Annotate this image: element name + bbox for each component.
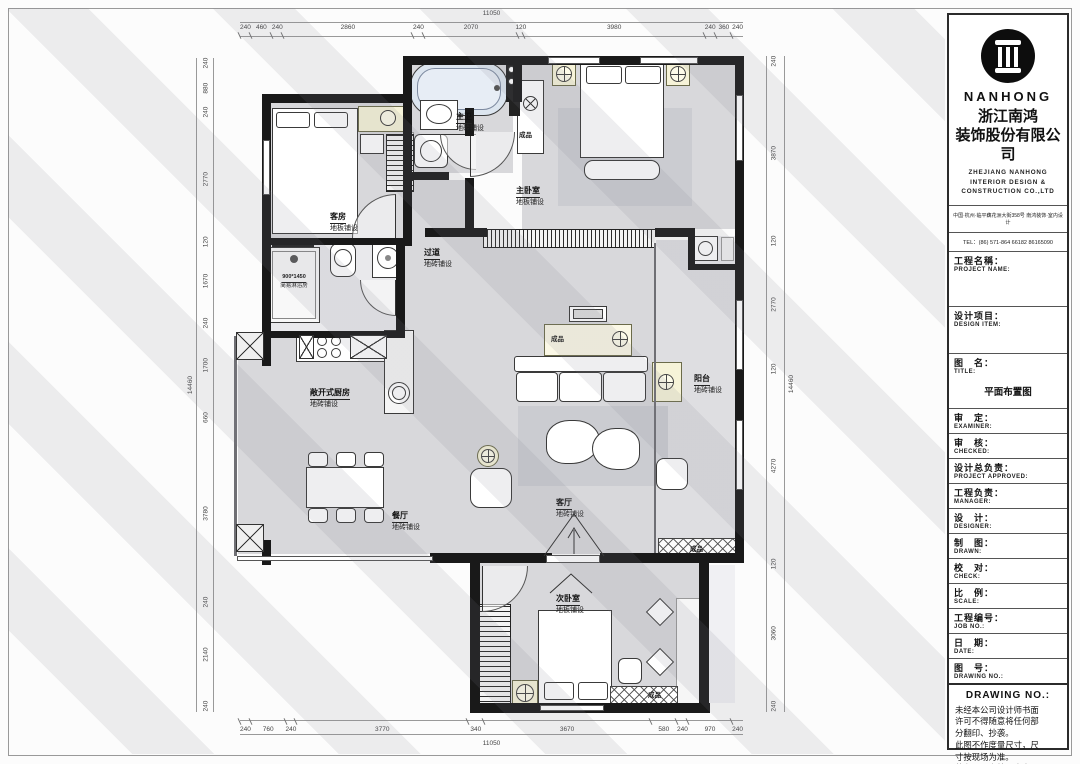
logo-column-bar: [1014, 47, 1018, 67]
dimension-total-top: 11050: [240, 10, 743, 23]
row-label-en: DRAWING NO.:: [954, 674, 1062, 680]
logo-column-cap: [995, 40, 1021, 45]
coffee-table: [592, 428, 640, 470]
dining-chair: [336, 508, 356, 523]
row-label-en: SCALE:: [954, 599, 1062, 605]
dimension-row-top: 240460240286024020701203980240360240: [240, 24, 743, 37]
dimension-value: 3870: [767, 67, 781, 238]
room-label-master: 主卧室 地板铺设: [516, 186, 544, 207]
company-name-en: ZHEJIANG NANHONG INTERIOR DESIGN & CONST…: [949, 168, 1067, 196]
column: [236, 524, 264, 552]
wall: [600, 553, 744, 563]
company-name-en-line: INTERIOR DESIGN &: [949, 178, 1067, 187]
dimension-value: 2770: [767, 243, 781, 366]
row-label-cn: 图 名：: [954, 356, 1062, 369]
nanhong-logo-icon: [981, 29, 1035, 83]
guest-drawer-unit: [360, 134, 384, 154]
lamp-cross-icon: [481, 449, 495, 463]
wall: [403, 56, 521, 65]
dimension-value: 240: [199, 107, 213, 118]
dimension-value: 240: [199, 597, 213, 608]
row-label-en: DRAWN:: [954, 549, 1062, 555]
drawing-notice-lines: 未经本公司设计师书面许可不得随意将任何部分翻印、抄袭。此图不作度量尺寸，尺寸按现…: [955, 705, 1061, 764]
dimension-value: 760: [251, 721, 286, 733]
fan-icon: [516, 684, 534, 702]
row-label-en: EXAMINER:: [954, 424, 1062, 430]
row-label-en: DATE:: [954, 649, 1062, 655]
notice-line: 此图不作度量尺寸，尺: [955, 740, 1061, 752]
sofa-back: [514, 356, 648, 372]
second-pillow: [544, 682, 574, 700]
room-label-balcony: 阳台 地砖铺设: [694, 374, 722, 395]
row-label-cn: 图 号：: [954, 661, 1062, 674]
row-label-en: CHECK:: [954, 574, 1062, 580]
dimension-col-left: 2408802402770120167024017006603780240214…: [199, 58, 214, 712]
dining-chair: [364, 508, 384, 523]
window: [540, 705, 604, 711]
row-label-cn: 工程负责：: [954, 486, 1062, 499]
window: [237, 556, 433, 561]
titleblock-row: 图 号：DRAWING NO.:: [949, 658, 1067, 683]
company-header: NANHONG 浙江南鸿 装饰股份有限公司 ZHEJIANG NANHONG I…: [949, 15, 1067, 197]
master-pillow: [586, 66, 622, 84]
row-label-en: DESIGN ITEM:: [954, 322, 1062, 328]
titleblock-row: 设计总负责：PROJECT APPROVED:: [949, 458, 1067, 483]
stool: [656, 458, 688, 490]
wall: [262, 94, 271, 366]
finished-label: 成品: [551, 333, 564, 343]
sofa-seat: [559, 372, 602, 402]
wall: [403, 172, 449, 180]
dimension-value: 660: [199, 403, 213, 432]
notice-line: 分翻印、抄袭。: [955, 728, 1061, 740]
sofa-seat: [603, 372, 646, 402]
wall: [403, 94, 412, 246]
dimension-value: 340: [468, 721, 483, 733]
dimension-value: 240: [732, 721, 743, 733]
dimension-value: 3060: [767, 566, 781, 702]
titleblock-row: 审 核：CHECKED:: [949, 433, 1067, 458]
room-label-dining: 餐厅 地砖铺设: [392, 511, 420, 532]
dimension-value: 2770: [199, 118, 213, 239]
row-label-cn: 设 计：: [954, 511, 1062, 524]
wall: [688, 264, 742, 270]
wall: [425, 228, 487, 237]
wall: [262, 238, 405, 245]
master-closet: [483, 229, 655, 248]
company-tel: TEL：(86) 571-864 66182 86165090: [949, 232, 1067, 251]
sofa-seat: [516, 372, 558, 402]
room-label-hallway: 过道 地砖铺设: [424, 248, 452, 269]
row-label-en: DESIGNER:: [954, 524, 1062, 530]
dimension-value: 14460: [187, 376, 194, 394]
row-label-en: CHECKED:: [954, 449, 1062, 455]
row-label-en: TITLE:: [954, 369, 1062, 375]
titleblock-row: 比 例：SCALE:: [949, 583, 1067, 608]
room-label-master-bath: 主卫 地砖铺设: [456, 112, 484, 133]
toilet-bowl: [334, 249, 352, 267]
dimension-value: 970: [688, 721, 732, 733]
room-label-living: 客厅 地砖铺设: [556, 498, 584, 519]
row-value: 平面布置图: [949, 384, 1067, 398]
window: [263, 140, 270, 195]
column: [236, 332, 264, 360]
wall: [699, 553, 709, 713]
row-label-cn: 比 例：: [954, 586, 1062, 599]
row-label-cn: 校 对：: [954, 561, 1062, 574]
island-end: [350, 335, 387, 359]
row-label-en: PROJECT APPROVED:: [954, 474, 1062, 480]
window: [736, 300, 743, 370]
row-label-cn: 工程名稱：: [954, 254, 1062, 267]
company-name-en-line: CONSTRUCTION CO.,LTD: [949, 187, 1067, 196]
tv-screen: [573, 309, 603, 319]
ceiling-light-icon: [658, 374, 674, 390]
row-label-cn: 工程编号：: [954, 611, 1062, 624]
dimension-total-right: 14460: [784, 56, 797, 712]
row-label-en: PROJECT NAME:: [954, 267, 1062, 273]
wall: [470, 562, 480, 712]
stove-burner: [317, 348, 327, 358]
door-swing-arrow-icon: [548, 572, 594, 594]
dimension-value: 3980: [524, 24, 705, 36]
dimension-value: 2140: [199, 608, 213, 702]
room-label-kitchen: 敞开式厨房 地砖铺设: [310, 388, 350, 409]
wall: [735, 238, 744, 563]
titleblock-row: 审 定：EXAMINER:: [949, 408, 1067, 433]
ceiling-light-icon: [612, 331, 628, 347]
row-label-cn: 设计项目：: [954, 309, 1062, 322]
ceiling-light-icon: [556, 66, 572, 82]
company-name-cn: 浙江南鸿 装饰股份有限公司: [949, 108, 1067, 164]
row-label-cn: 日 期：: [954, 636, 1062, 649]
floor-bay-window: [709, 565, 735, 703]
room-label-second: 次卧室 地板铺设: [556, 594, 584, 615]
bay-window-sill: [676, 598, 700, 706]
dimension-value: 11050: [483, 10, 501, 17]
dimension-total-left: 14460: [184, 58, 197, 712]
company-name-cn-line: 浙江南鸿: [949, 108, 1067, 127]
shower-head-icon: [290, 255, 298, 263]
titleblock-row: 工程编号：JOB NO.:: [949, 608, 1067, 633]
island-end: [299, 335, 314, 359]
window: [736, 420, 743, 490]
titleblock-row: 日 期：DATE:: [949, 633, 1067, 658]
titleblock-row: 设计项目：DESIGN ITEM:: [949, 306, 1067, 353]
dimension-col-right: 2403870120277012042701203060240: [766, 56, 781, 712]
bathtub-faucet: [494, 85, 500, 91]
kitchen-sink-inner: [392, 386, 406, 400]
finished-label: 成品: [519, 129, 532, 139]
titleblock-rows: 工程名稱：PROJECT NAME:设计项目：DESIGN ITEM:图 名：T…: [949, 251, 1067, 683]
dimension-value: 240: [199, 58, 213, 69]
brand-name: NANHONG: [949, 89, 1067, 104]
window: [640, 57, 698, 64]
desk-chair: [618, 658, 642, 684]
room-label-guest: 客房 地板铺设: [330, 212, 358, 233]
titleblock-row: 工程名稱：PROJECT NAME:: [949, 251, 1067, 306]
dining-table: [306, 467, 384, 508]
guest-pillow: [276, 112, 310, 128]
logo-column-cap: [995, 68, 1021, 73]
dimension-value: 14460: [788, 375, 795, 393]
room-label-shower: 900*1450 简易淋浴房: [270, 274, 318, 290]
drawing-notice: DRAWING NO.: 未经本公司设计师书面许可不得随意将任何部分翻印、抄袭。…: [949, 683, 1067, 764]
utility-shelf: [721, 237, 734, 261]
dimension-value: 4270: [767, 371, 781, 560]
dining-chair: [308, 508, 328, 523]
company-name-en-line: ZHEJIANG NANHONG: [949, 168, 1067, 177]
wall: [262, 94, 412, 103]
ceiling-light-icon: [670, 66, 686, 82]
dimension-value: 3670: [484, 721, 651, 733]
wall: [430, 553, 552, 563]
dimension-value: 240: [677, 721, 688, 733]
washer-drum: [698, 241, 713, 256]
dimension-value: 11050: [483, 740, 501, 747]
dimension-total-bottom: 11050: [240, 734, 743, 747]
dimension-value: 2070: [424, 24, 518, 36]
row-label-en: MANAGER:: [954, 499, 1062, 505]
second-pillow: [578, 682, 608, 700]
dimension-row-bottom: 24076024037703403670580240970240: [240, 720, 743, 733]
drawing-sheet: 客房 地板铺设 主卫 地砖铺设 主卧室 地板铺设 过道 地砖铺设 900*145…: [0, 0, 1080, 764]
window: [736, 95, 743, 161]
master-pillow: [625, 66, 661, 84]
dimension-value: 240: [199, 701, 213, 712]
second-wardrobe: [477, 604, 511, 708]
titleblock-row: 校 对：CHECK:: [949, 558, 1067, 583]
stove-burner: [331, 348, 341, 358]
company-name-cn-line: 装饰股份有限公司: [949, 127, 1067, 165]
dimension-value: 240: [732, 24, 743, 36]
toilet-bowl: [420, 140, 442, 162]
dimension-value: 240: [767, 701, 781, 712]
dimension-value: 580: [651, 721, 677, 733]
title-block: NANHONG 浙江南鸿 装饰股份有限公司 ZHEJIANG NANHONG I…: [947, 13, 1069, 750]
notice-line: 未经本公司设计师书面: [955, 705, 1061, 717]
dimension-value: 460: [251, 24, 272, 36]
drawing-notice-title: DRAWING NO.:: [955, 690, 1061, 701]
dining-chair: [364, 452, 384, 467]
logo-column-bar: [1006, 47, 1010, 67]
dimension-value: 880: [199, 69, 213, 108]
titleblock-row: 设 计：DESIGNER:: [949, 508, 1067, 533]
row-label-cn: 设计总负责：: [954, 461, 1062, 474]
titleblock-row: 工程负责：MANAGER:: [949, 483, 1067, 508]
window: [548, 57, 600, 64]
armchair: [470, 468, 512, 508]
wall: [396, 238, 405, 338]
row-label-en: JOB NO.:: [954, 624, 1062, 630]
company-address: 中国·杭州·临平藕花洲大街358号 南鸿装饰·室内设计: [949, 205, 1067, 232]
notice-line: 寸按现场为准。: [955, 752, 1061, 764]
cabinet-symbol-icon: [380, 110, 396, 126]
vanity-basin: [426, 104, 452, 124]
balcony-divider: [654, 243, 656, 555]
finished-label: 成品: [690, 543, 703, 553]
dimension-value: 240: [240, 721, 251, 733]
notice-line: 许可不得随意将任何部: [955, 716, 1061, 728]
dining-chair: [336, 452, 356, 467]
dimension-value: 1700: [199, 328, 213, 403]
guest-pillow: [314, 112, 348, 128]
dimension-value: 240: [767, 56, 781, 67]
window-wall: [234, 336, 237, 556]
bed-bench: [584, 160, 660, 180]
plant-icon: [523, 96, 538, 111]
dimension-value: 3780: [199, 431, 213, 597]
dimension-value: 1670: [199, 244, 213, 317]
dimension-value: 2860: [283, 24, 413, 36]
row-label-cn: 审 定：: [954, 411, 1062, 424]
titleblock-row: 制 图：DRAWN:: [949, 533, 1067, 558]
basin-drain: [385, 255, 391, 261]
dimension-value: 240: [199, 318, 213, 329]
logo-column-bar: [998, 47, 1002, 67]
dining-chair: [308, 452, 328, 467]
titleblock-row: 图 名：TITLE:平面布置图: [949, 353, 1067, 408]
dimension-value: 3770: [296, 721, 468, 733]
row-label-cn: 制 图：: [954, 536, 1062, 549]
row-label-cn: 审 核：: [954, 436, 1062, 449]
wall: [513, 56, 522, 102]
finished-label: 成品: [648, 689, 661, 699]
